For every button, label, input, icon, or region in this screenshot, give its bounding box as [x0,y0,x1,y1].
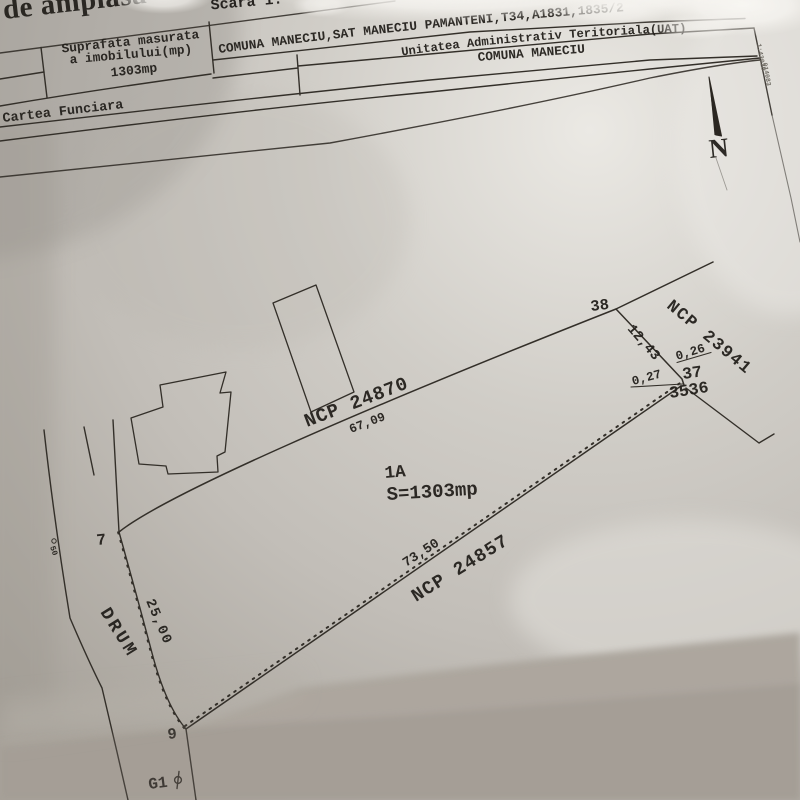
svg-text:7: 7 [96,531,107,550]
svg-text:1A: 1A [384,462,407,484]
svg-text:38: 38 [589,296,610,316]
svg-text:N: N [707,132,730,164]
